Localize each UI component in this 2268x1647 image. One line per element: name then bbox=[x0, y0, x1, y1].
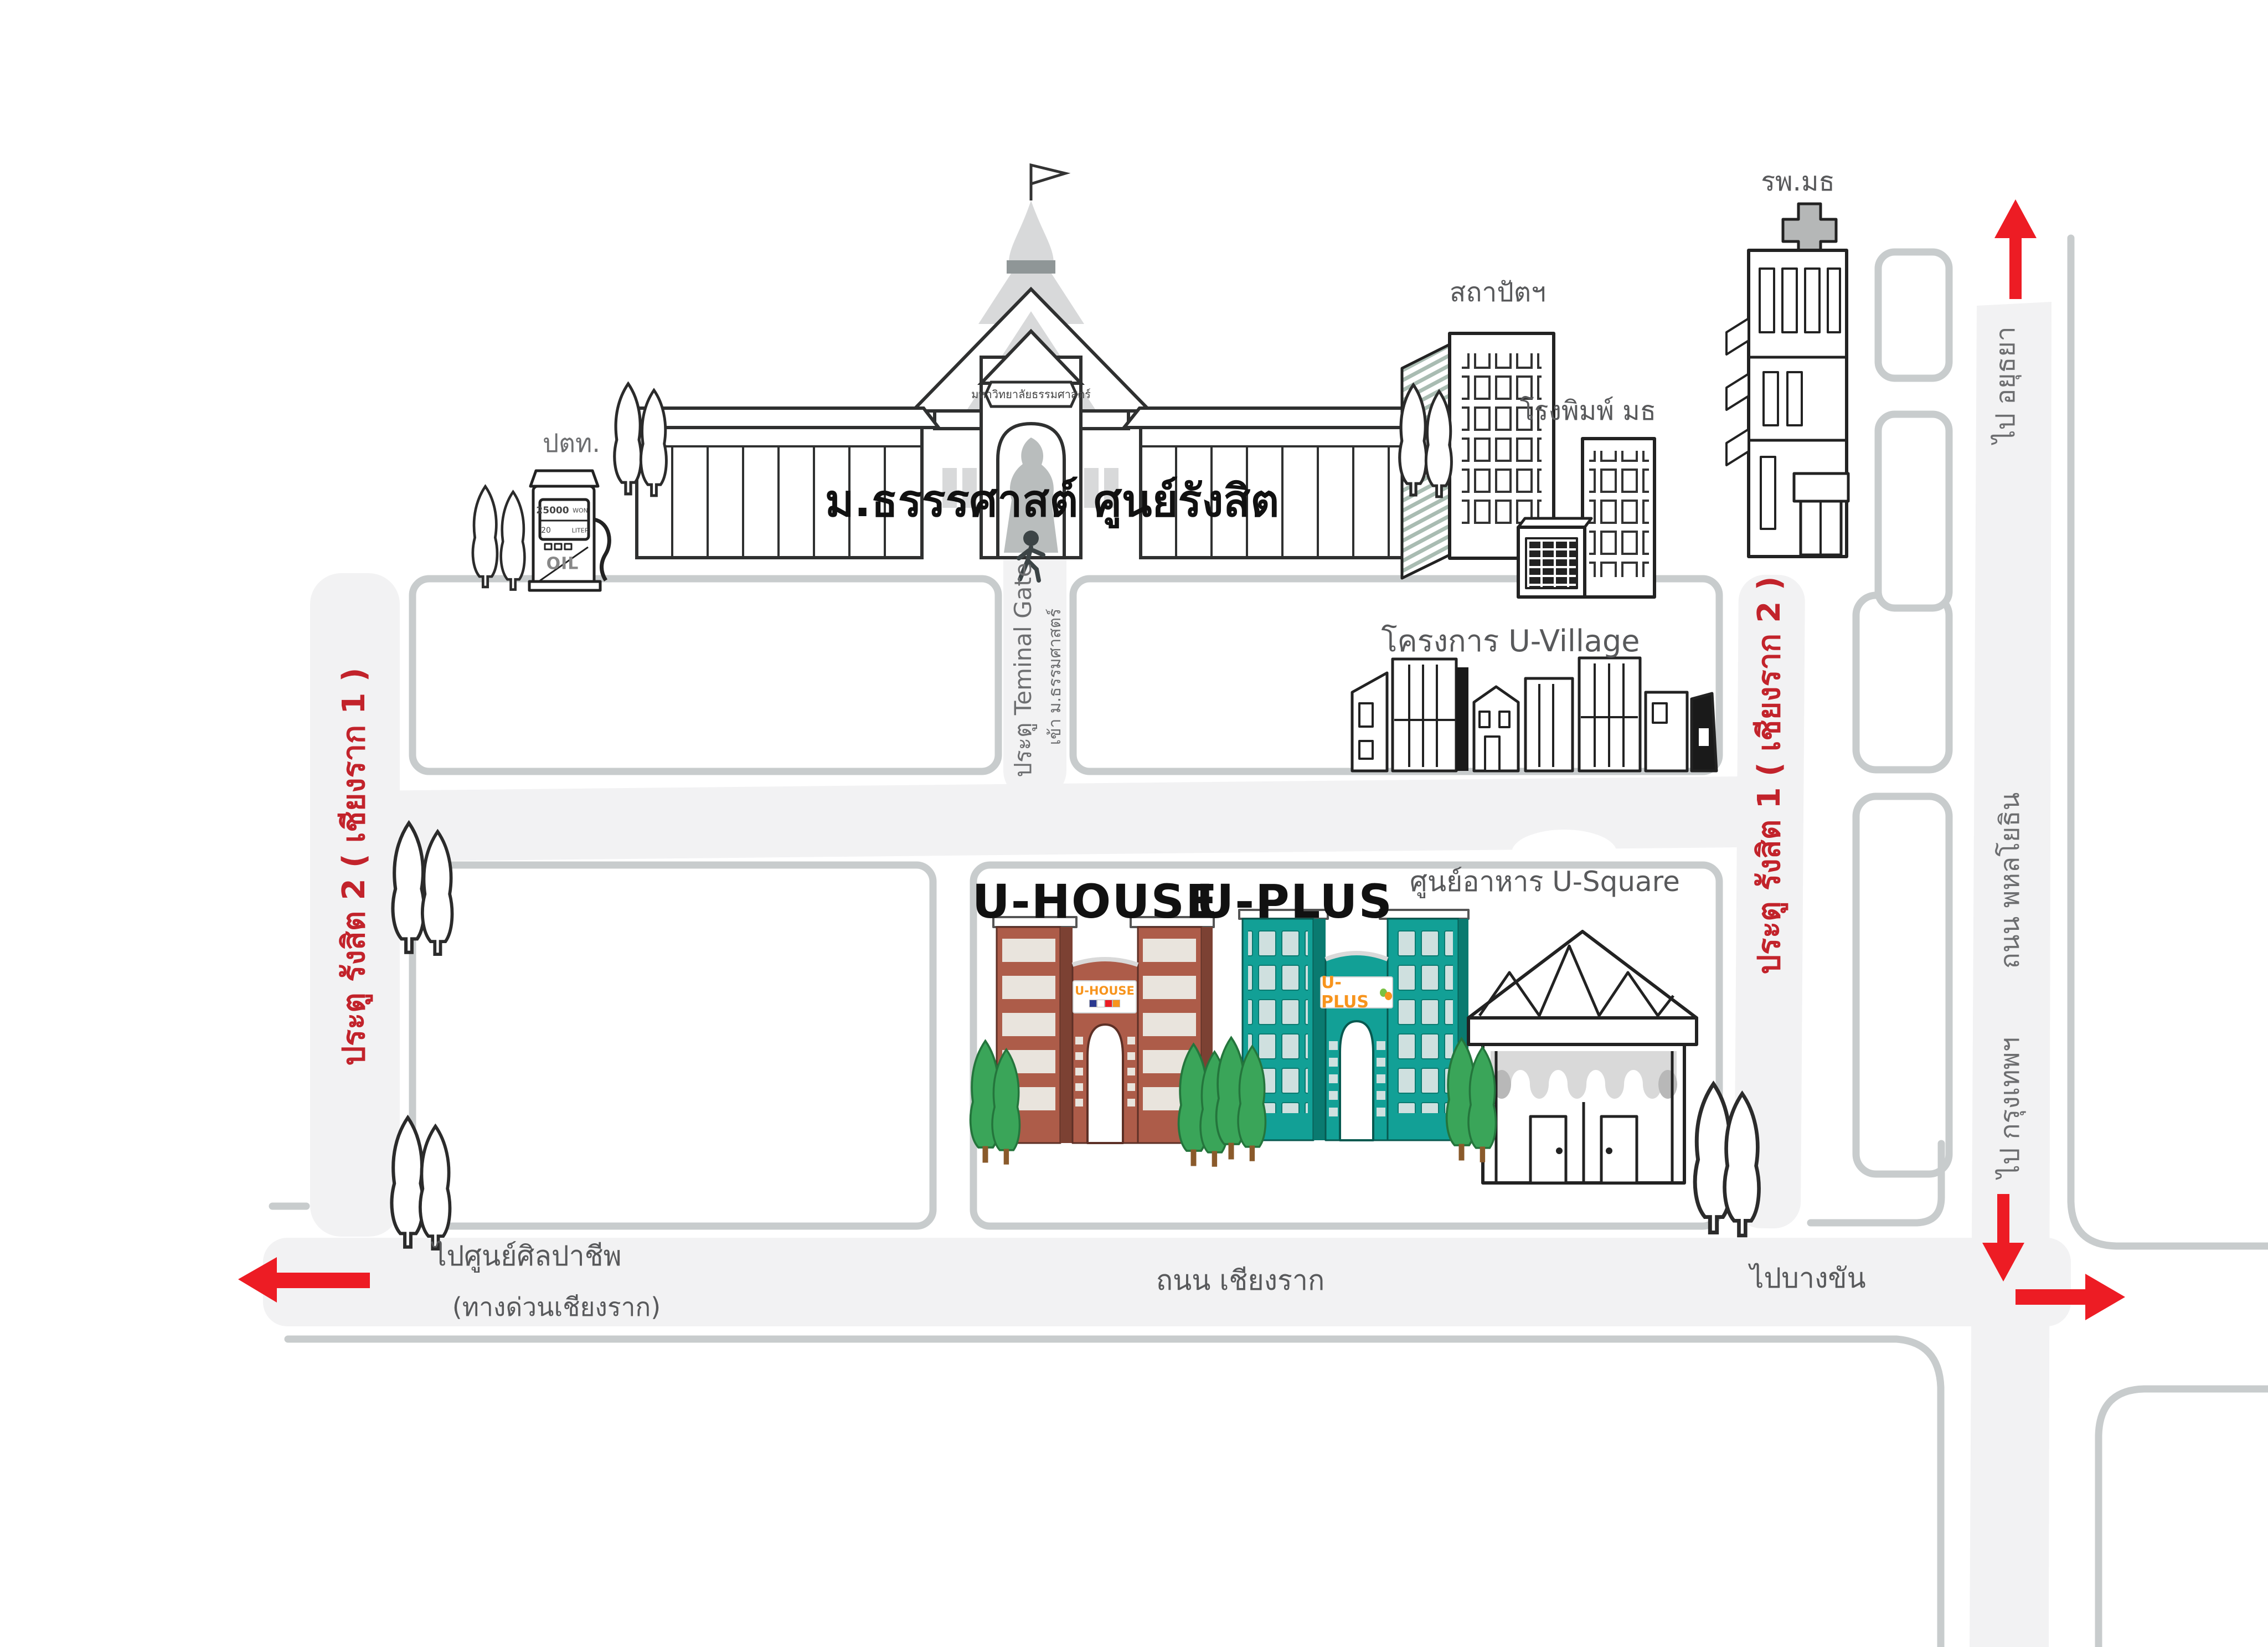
pump-unit2: LITER bbox=[572, 527, 589, 534]
u-plus-sign: U-PLUS bbox=[1320, 976, 1393, 1008]
map-title: ม.ธรรรศาสต์ ศูนย์รังสิต bbox=[825, 479, 1279, 523]
hospital-building bbox=[1726, 204, 1848, 557]
u-village-label: โครงการ U-Village bbox=[1382, 626, 1640, 656]
ptt-label: ปตท. bbox=[543, 430, 600, 456]
gate-rangsit1-label: ประตู รังสิต 1 ( เชียงราก 2 ) bbox=[1754, 577, 1785, 975]
pump-brand: OIL bbox=[547, 554, 579, 574]
u-house-sign-text: U-HOUSE bbox=[1075, 984, 1135, 997]
u-plus-arch bbox=[1340, 1021, 1373, 1140]
u-house-sign-flags bbox=[1089, 999, 1120, 1010]
u-house-arch bbox=[1087, 1025, 1123, 1143]
architecture-label: สถาปัตฯ bbox=[1450, 279, 1546, 306]
u-house-sign: U-HOUSE bbox=[1073, 980, 1137, 1013]
to-silpachip-label: ไปศูนย์ศิลปาชีพ bbox=[432, 1242, 621, 1270]
u-plus-sign-text: U-PLUS bbox=[1321, 973, 1379, 1012]
pump-unit1: WON bbox=[573, 507, 588, 514]
to-bangkok-label: ไป กรุงเทพฯ bbox=[1997, 1037, 2023, 1178]
chiangrak-road-label: ถนน เชียงราก bbox=[1156, 1267, 1324, 1294]
phahonyothin-road-label: ถนน พหลโยธิน bbox=[1997, 792, 2023, 969]
u-square-label: ศูนย์อาหาร U-Square bbox=[1410, 868, 1680, 895]
pump-price: 25000 bbox=[536, 505, 569, 516]
block-upper-left bbox=[413, 579, 998, 771]
campus-plaque-label: มหาวิทยาลัยธรรมศาสตร์ bbox=[971, 389, 1091, 400]
arrow-up-icon bbox=[1994, 199, 2037, 299]
to-bangkhan-label: ไปบางขัน bbox=[1750, 1264, 1865, 1292]
campus-area-map: ม.ธรรรศาสต์ ศูนย์รังสิต มหาวิทยาลัยธรรมศ… bbox=[0, 0, 2268, 1647]
terminal-gate-sublabel: เข้า ม.ธรรมศาสตร์ bbox=[1047, 609, 1064, 745]
printing-house-label: โรงพิมพ์ มธ bbox=[1520, 398, 1656, 424]
block-lower-left bbox=[413, 865, 933, 1226]
terminal-gate-label: ประตู Teminal Gate bbox=[1012, 563, 1035, 777]
entrance-canopy bbox=[1794, 473, 1848, 501]
gate-rangsit2-label: ประตู รังสิต 2 ( เชียงราก 1 ) bbox=[339, 668, 370, 1066]
pump-qty: 20 bbox=[541, 526, 551, 535]
block-right-b bbox=[1856, 796, 1949, 1174]
u-house-label: U-HOUSE bbox=[972, 878, 1219, 925]
block-right-c bbox=[1878, 252, 1949, 378]
to-ayutthaya-label: ไป อยุธยา bbox=[1992, 326, 2019, 443]
block-right-d bbox=[1878, 414, 1949, 608]
u-plus-label: U-PLUS bbox=[1196, 878, 1393, 925]
block-right-a bbox=[1856, 595, 1949, 770]
u-plus-sign-dot-orange bbox=[1385, 992, 1392, 1000]
hospital-label: รพ.มธ bbox=[1761, 168, 1835, 195]
to-silpachip-sublabel: (ทางด่วนเชียงราก) bbox=[452, 1294, 661, 1320]
flag-icon bbox=[1031, 165, 1065, 184]
